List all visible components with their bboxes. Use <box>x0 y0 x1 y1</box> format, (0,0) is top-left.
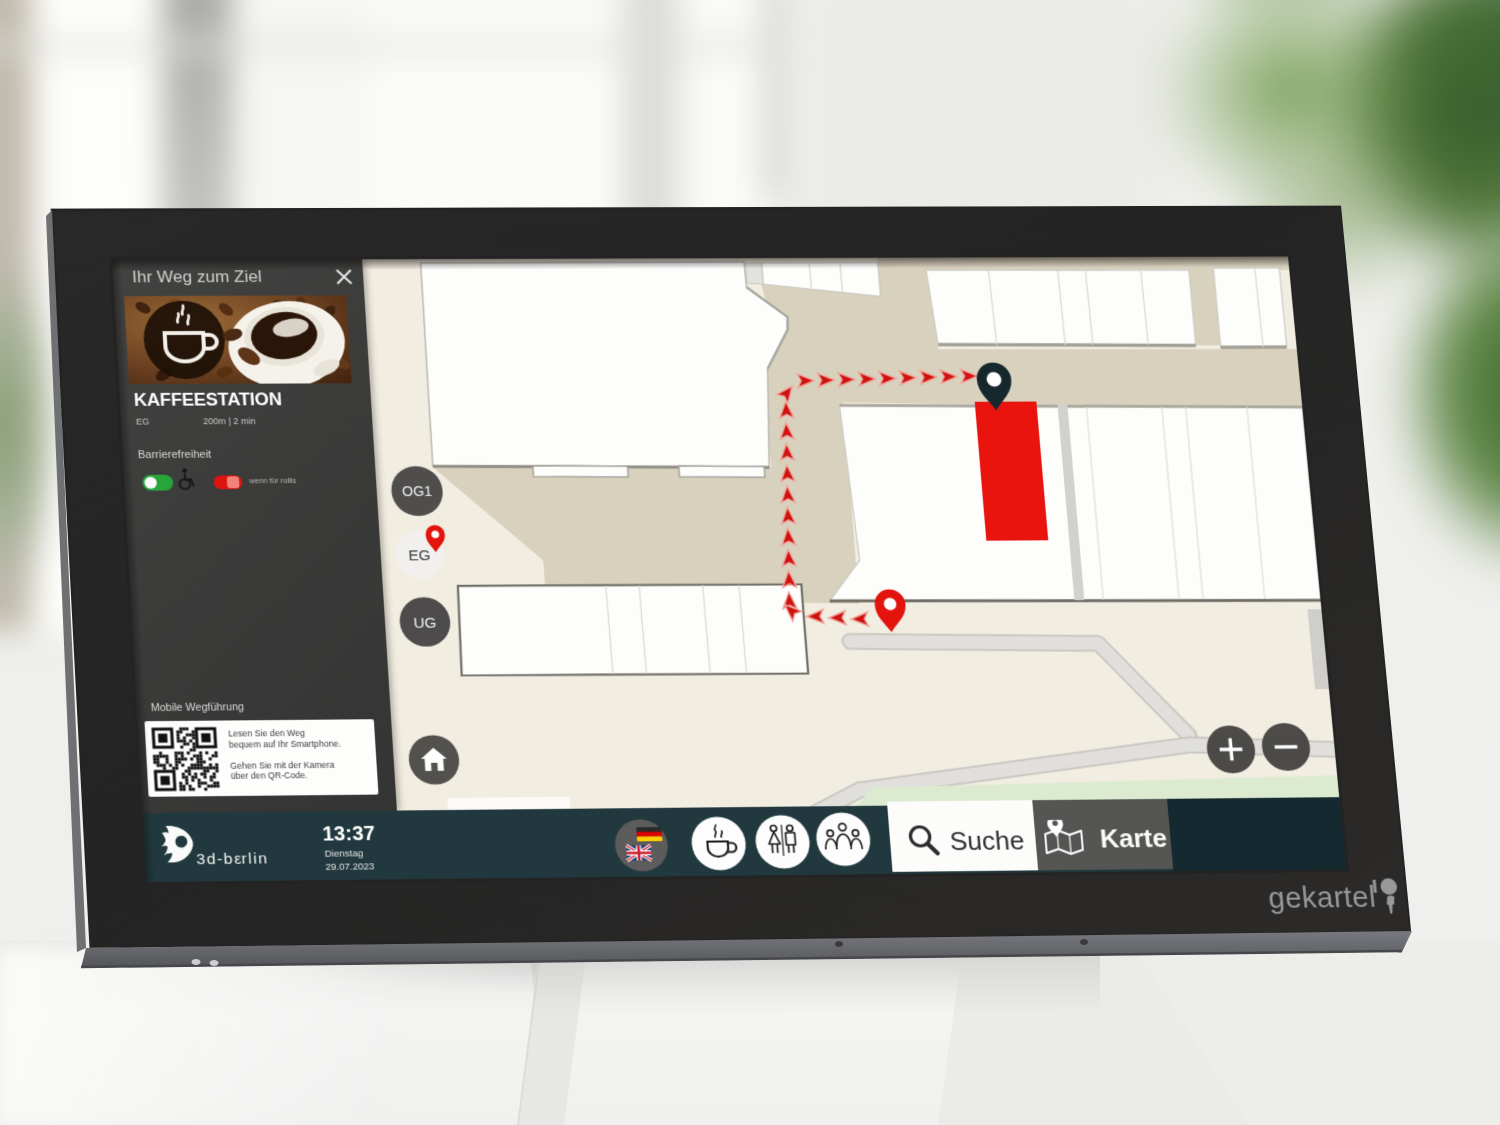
svg-text:EG: EG <box>408 548 431 564</box>
svg-text:OG1: OG1 <box>402 483 433 499</box>
svg-text:UG: UG <box>413 616 437 632</box>
